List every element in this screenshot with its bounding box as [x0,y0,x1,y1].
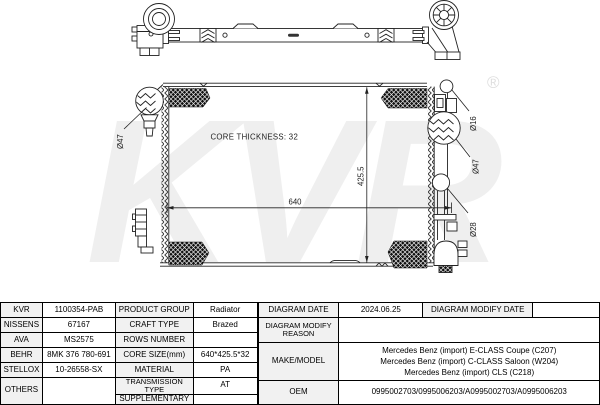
prop-label: MATERIAL [115,363,193,378]
chevron-band-left [200,29,216,43]
port-right-mid-diameter-label: Ø47 [472,159,481,174]
brand-code: 10-26558-SX [42,363,115,378]
prop-value: PA [193,363,257,378]
brand-name: NISSENS [1,318,43,333]
core-fins-left-edge [162,87,169,263]
prop-label: TRANSMISSION TYPE [115,378,193,395]
spec-table: KVR 1100354-PAB PRODUCT GROUP Radiator N… [0,302,600,405]
make-model-label: MAKE/MODEL [258,343,339,381]
radiator-diagram-svg: KVR ® [0,0,600,302]
radiator-technical-drawing: KVR ® [0,0,600,302]
oem-label: OEM [258,381,339,405]
core-thickness-label: CORE THICKNESS: 32 [211,133,299,142]
make-model-line: Mercedes Benz (import) CLS (C218) [340,367,598,378]
chevron-band-right [378,29,394,43]
prop-value [193,394,257,404]
port-left-diameter-label: Ø47 [116,134,125,149]
port-right-bottom-diameter-label: Ø28 [469,222,478,237]
radiator-catalog-page: { "colors": { "line": "#222222", "hatch_… [0,0,600,402]
modify-reason-label: DIAGRAM MODIFY REASON [258,318,339,343]
port-right-top-diameter-label: Ø16 [469,116,478,131]
modify-date-value [533,303,600,318]
prop-label: CORE SIZE(mm) [115,348,193,363]
brand-name: BEHR [1,348,43,363]
brand-code: MS2575 [42,333,115,348]
top-view-left-mount [132,4,175,56]
make-model-line: Mercedes Benz (import) E-CLASS Coupe (C2… [340,345,598,356]
seal-band-bottom-left [169,242,209,265]
prop-label: ROWS NUMBER [115,333,193,348]
brand-name: AVA [1,333,43,348]
oem-value: 0995002703/0995006203/A0995002703/A09950… [339,381,600,405]
top-view-right-mount [427,1,460,60]
brand-name: STELLOX [1,363,43,378]
diagram-date-label: DIAGRAM DATE [258,303,339,318]
cross-reference-table: KVR 1100354-PAB PRODUCT GROUP Radiator N… [0,302,258,405]
prop-value: Radiator [193,303,257,318]
diagram-info-table: DIAGRAM DATE 2024.06.25 DIAGRAM MODIFY D… [258,302,600,405]
prop-label: CRAFT TYPE [115,318,193,333]
prop-value: 640*425.5*32 [193,348,257,363]
prop-value: Brazed [193,318,257,333]
brand-name: KVR [1,303,43,318]
seal-band-top-left [169,89,210,108]
seal-band-top-right [381,89,427,109]
diagram-date-value: 2024.06.25 [339,303,423,318]
prop-label: PRODUCT GROUP [115,303,193,318]
make-model-value: Mercedes Benz (import) E-CLASS Coupe (C2… [339,343,600,381]
core-fins-right-edge [428,87,435,263]
port-d28-circle [432,174,449,191]
prop-value [193,333,257,348]
modify-reason-value [339,318,600,343]
seal-band-bottom-right [388,241,427,268]
port-d16-circle [440,80,453,93]
brand-code: 1100354-PAB [42,303,115,318]
brand-code: 8MK 376 780-691 [42,348,115,363]
dim-height-label: 425.5 [357,166,366,186]
prop-label: SUPPLEMENTARY [115,394,193,404]
brand-code [42,378,115,405]
radiator-top-view [132,1,460,60]
drain-fitting [434,241,458,266]
brand-name: OTHERS [1,378,43,405]
dim-width-label: 640 [288,198,302,207]
mount-slot [288,34,299,37]
modify-date-label: DIAGRAM MODIFY DATE [423,303,533,318]
brand-code: 67167 [42,318,115,333]
prop-value: AT [193,378,257,395]
make-model-line: Mercedes Benz (import) C-CLASS Saloon (W… [340,356,598,367]
registered-mark-icon: ® [487,73,500,92]
